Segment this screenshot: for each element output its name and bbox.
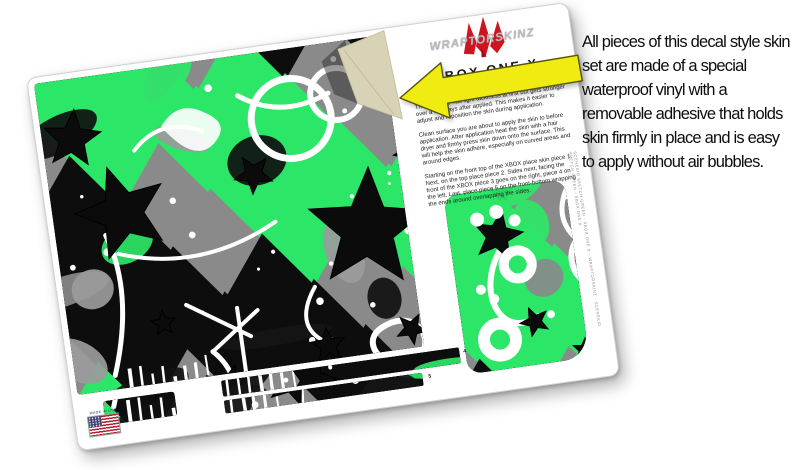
piece-number-label: 5 (428, 374, 432, 380)
product-photo-canvas: { "description": "All pieces of this dec… (0, 0, 799, 470)
description-text: All pieces of this decal style skin set … (582, 30, 794, 174)
us-flag-icon (87, 412, 122, 437)
made-in-usa: MADE IN USA (86, 407, 123, 437)
yellow-arrow-icon (385, 45, 597, 130)
piece-number-label: 4 (463, 348, 467, 354)
controller-skin-piece (443, 179, 589, 374)
